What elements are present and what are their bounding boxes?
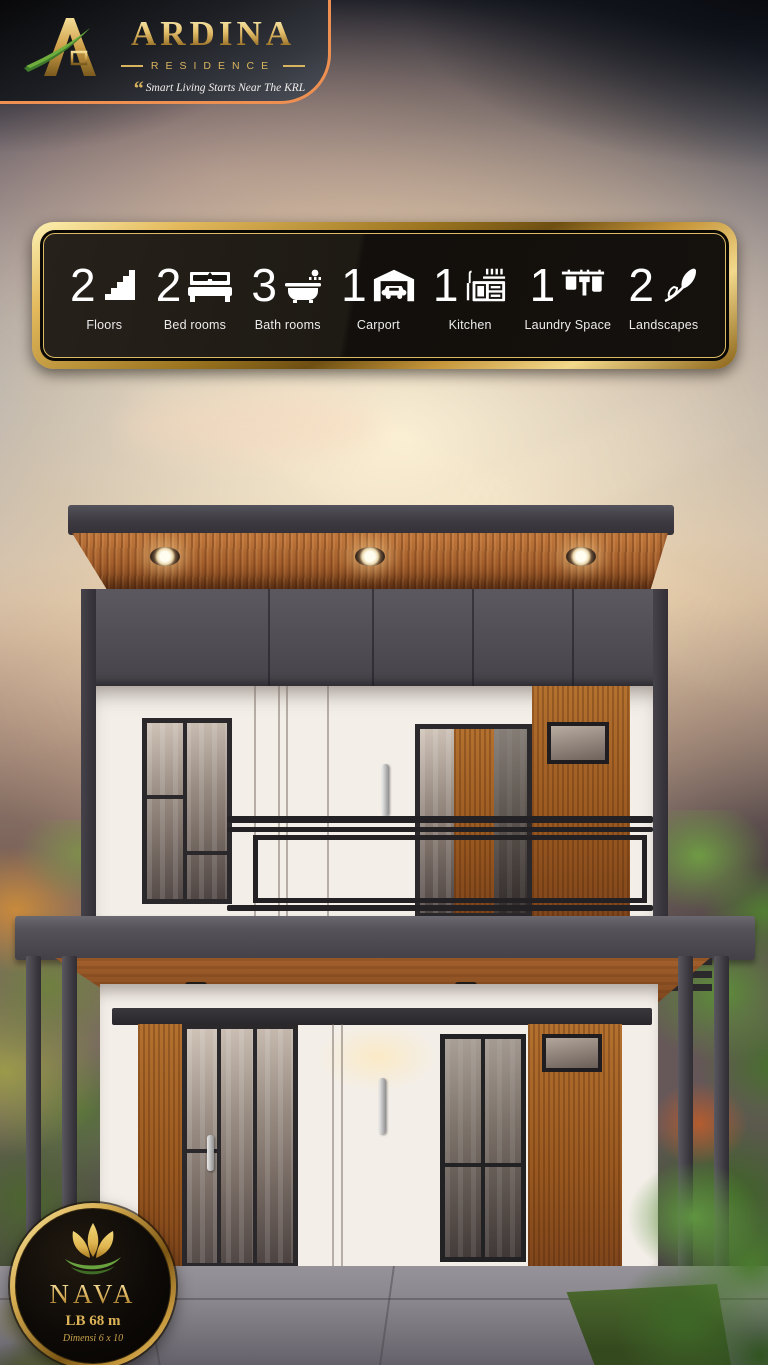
ground-right-window	[440, 1034, 526, 1262]
balcony-railing	[227, 905, 653, 911]
residence-dash	[121, 65, 143, 67]
balcony-railing-frame	[253, 835, 647, 903]
feature-label: Landscapes	[629, 318, 698, 332]
bed-icon	[186, 266, 234, 304]
panel-seam	[268, 589, 270, 688]
feature-floors: 2 Floors	[70, 259, 139, 332]
cloud	[120, 390, 380, 460]
unit-name: NAVA	[49, 1279, 136, 1310]
wall-seam	[332, 1024, 334, 1268]
flyer-canvas: ARDINA RESIDENCE “Smart Living Starts Ne…	[0, 0, 768, 1365]
carport-canopy	[15, 916, 755, 960]
feature-bathrooms: 3 Bath rooms	[251, 259, 324, 332]
feature-count: 2	[156, 262, 182, 308]
upstairs-left-window	[142, 718, 232, 904]
building-area: LB 68 m	[65, 1313, 120, 1330]
upper-facade-panel-band	[81, 589, 668, 688]
door-header-beam	[112, 1008, 652, 1025]
brand-subtitle: RESIDENCE	[108, 60, 318, 72]
unit-dimension: Dimensi 6 x 10	[63, 1333, 123, 1344]
feature-kitchen: 1	[433, 259, 508, 332]
upstairs-door-handle	[382, 764, 389, 816]
unit-type-badge: NAVA LB 68 m Dimensi 6 x 10	[10, 1203, 176, 1365]
panel-seam	[372, 589, 374, 688]
panel-seam	[572, 589, 574, 688]
carport-icon	[372, 266, 416, 304]
pavement-seam	[379, 1266, 395, 1365]
feature-count: 3	[251, 262, 277, 308]
unit-type-badge-inner: NAVA LB 68 m Dimensi 6 x 10	[15, 1208, 171, 1364]
feature-carport: 1 Carport	[341, 259, 416, 332]
roof-fascia	[68, 505, 674, 535]
brand-tagline: “Smart Living Starts Near The KRL	[112, 78, 327, 101]
feature-label: Carport	[357, 318, 400, 332]
nava-lotus-icon	[57, 1221, 129, 1277]
feature-count: 2	[70, 262, 96, 308]
feature-count: 1	[433, 262, 459, 308]
feature-label: Kitchen	[449, 318, 492, 332]
features-bar-inner: 2 Floors 2	[43, 233, 726, 358]
downlight	[566, 547, 596, 566]
bathtub-icon	[282, 266, 324, 304]
features-bar-gap: 2 Floors 2	[40, 230, 729, 361]
downlight	[355, 547, 385, 566]
feature-label: Bed rooms	[164, 318, 226, 332]
ground-wood-door	[528, 1024, 622, 1268]
feature-bedrooms: 2 Bed rooms	[156, 259, 235, 332]
panel-seam	[472, 589, 474, 688]
residence-dash	[283, 65, 305, 67]
wall-light-glow	[318, 1022, 438, 1092]
feature-count: 2	[628, 262, 654, 308]
quote-mark-icon: “	[134, 78, 144, 100]
feature-label: Bath rooms	[255, 318, 321, 332]
kitchen-icon	[463, 265, 507, 305]
balcony-railing	[227, 816, 653, 823]
feature-landscapes: 2 Landscapes	[628, 259, 699, 332]
feature-laundry: 1 Laundry Space	[525, 259, 612, 332]
left-corner-trim	[81, 589, 96, 920]
feature-label: Laundry Space	[525, 318, 612, 332]
feature-count: 1	[530, 262, 556, 308]
stairs-icon	[101, 266, 139, 304]
ground-left-window	[182, 1024, 298, 1268]
leaf-icon	[659, 266, 699, 304]
roof-wood-soffit	[72, 533, 668, 591]
brand-subtitle-text: RESIDENCE	[151, 60, 275, 72]
brand-header: ARDINA RESIDENCE “Smart Living Starts Ne…	[0, 0, 331, 104]
features-bar: 2 Floors 2	[32, 222, 737, 369]
front-right-bush	[618, 1160, 768, 1365]
feature-count: 1	[341, 262, 367, 308]
window-handle	[207, 1135, 214, 1171]
ardina-logo-icon	[20, 6, 108, 94]
feature-label: Floors	[86, 318, 122, 332]
door-transom-window	[542, 1034, 602, 1072]
front-door-handle	[379, 1078, 386, 1134]
upstairs-small-window	[547, 722, 609, 764]
downlight	[150, 547, 180, 566]
laundry-icon	[560, 266, 606, 304]
wall-seam	[341, 1024, 343, 1268]
balcony-railing	[227, 827, 653, 832]
tagline-text: Smart Living Starts Near The KRL	[146, 82, 305, 94]
brand-name: ARDINA	[108, 14, 318, 54]
right-corner-trim	[653, 589, 668, 920]
